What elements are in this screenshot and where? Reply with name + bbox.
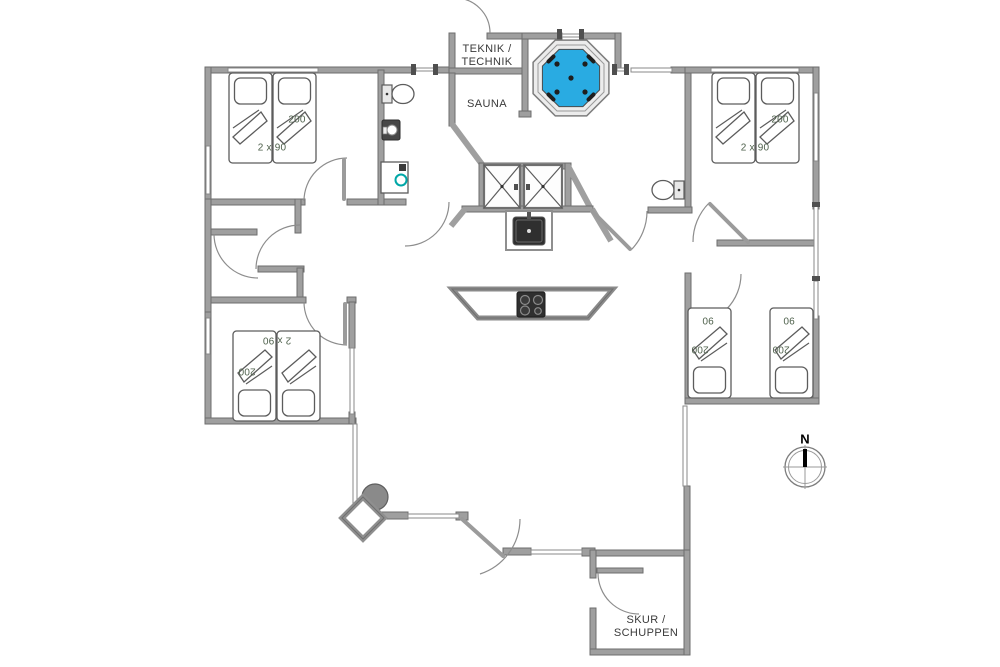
toilet-right bbox=[652, 181, 684, 200]
sink-counter bbox=[506, 211, 552, 250]
bed-size-label: 2 x 90 bbox=[258, 143, 286, 154]
toilet-left bbox=[382, 85, 414, 104]
label-shed-line1: SKUR / bbox=[626, 614, 665, 626]
label-shed-line2: SCHUPPEN bbox=[614, 627, 678, 639]
label-sauna: SAUNA bbox=[467, 98, 507, 110]
compass-rose bbox=[783, 445, 827, 489]
bed-width-label: 90 bbox=[783, 315, 795, 326]
kitchen-island bbox=[452, 289, 613, 318]
bed-size-label: 2 x 90 bbox=[263, 335, 291, 346]
label-teknik-line2: TECHNIK bbox=[461, 56, 512, 68]
wall-sink bbox=[382, 120, 400, 140]
label-teknik-line1: TEKNIK / bbox=[462, 43, 511, 55]
bed-size-label: 2 x 90 bbox=[741, 143, 769, 154]
washing-machine bbox=[381, 162, 408, 193]
label-compass-north: N bbox=[800, 432, 809, 447]
bed-length-label: 200 bbox=[772, 344, 789, 355]
floor-plan: TEKNIK / TECHNIK SAUNA SKUR / SCHUPPEN N… bbox=[0, 0, 1000, 667]
bed-length-label: 200 bbox=[771, 115, 788, 126]
washer-door-ring bbox=[396, 175, 407, 186]
hot-tub bbox=[533, 40, 609, 116]
bed-length-label: 200 bbox=[288, 115, 305, 126]
shower-stalls bbox=[484, 165, 562, 208]
wood-stove bbox=[342, 484, 388, 539]
bed-width-label: 90 bbox=[702, 315, 714, 326]
bed-length-label: 200 bbox=[238, 366, 255, 377]
bed-length-label: 200 bbox=[691, 344, 708, 355]
